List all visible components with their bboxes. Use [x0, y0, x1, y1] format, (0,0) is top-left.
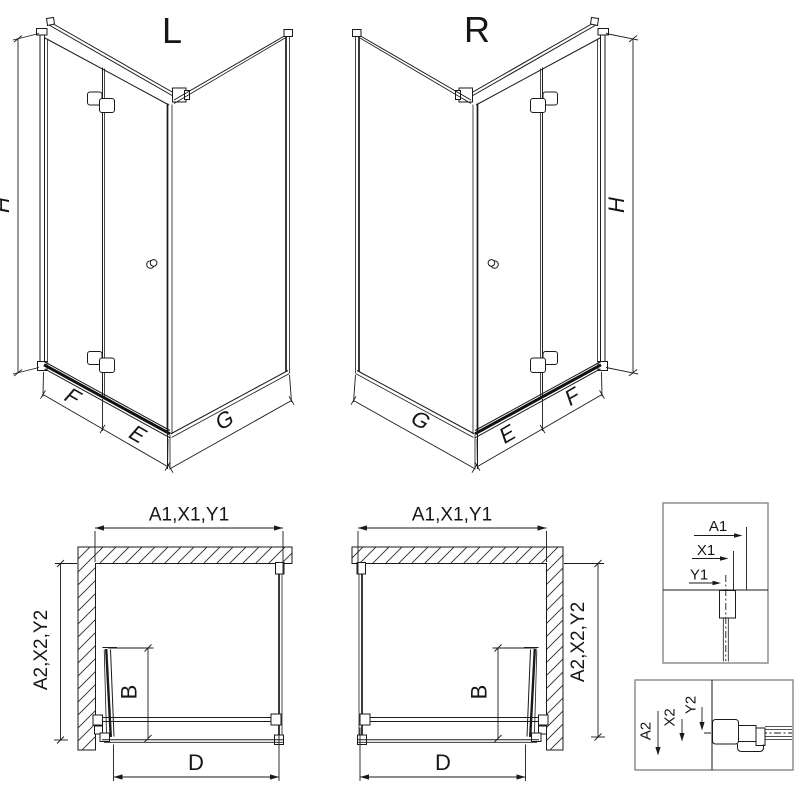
dim-label-a1x1y1-left: A1,X1,Y1	[149, 505, 229, 526]
dimension-height-left: H	[0, 34, 39, 377]
dim-label-b-left: B	[117, 685, 142, 700]
shower-enclosure-technical-drawing: L	[0, 0, 800, 800]
dim-label-d-left: D	[188, 750, 204, 775]
detail-label-a2: A2	[638, 722, 655, 740]
bifold-door	[476, 38, 600, 398]
stabilizer-bar	[370, 715, 548, 725]
dimension-front-right: E F	[475, 372, 605, 471]
bifold-door	[45, 38, 169, 398]
fixed-panel	[357, 563, 370, 745]
dim-label-d-right: D	[435, 750, 451, 775]
detail-bottom-depth: A2 X2 Y2	[635, 680, 793, 770]
detail-top-width: A1 X1 Y1	[663, 503, 768, 663]
dim-label-b-right: B	[467, 685, 492, 700]
detail-label-a1: A1	[709, 518, 727, 535]
dimension-door-b: B	[108, 645, 154, 743]
detail-label-y1: Y1	[690, 567, 708, 584]
dimension-front-left: F E	[41, 372, 171, 471]
dim-label-a2x2y2-left: A2,X2,Y2	[31, 610, 52, 690]
plan-view-left: A1,X1,Y1 A2,X2,Y2 B D	[31, 505, 292, 782]
tray-edge	[102, 740, 283, 743]
drawing-sheet: L	[0, 0, 800, 800]
dim-label-a1x1y1-right: A1,X1,Y1	[412, 505, 492, 526]
dimension-side-left: G	[168, 375, 294, 473]
corner-post	[168, 104, 173, 470]
dim-label-h-left: H	[0, 197, 14, 213]
dimension-depth-side: A2,X2,Y2	[564, 560, 605, 741]
dim-label-g-left: G	[211, 405, 238, 435]
detail-label-y2: Y2	[683, 696, 700, 714]
fold-hinge-top	[531, 92, 558, 113]
fixed-panel	[271, 563, 284, 745]
door-handle-knob	[147, 260, 157, 269]
iso-view-right: R	[351, 9, 638, 473]
dim-label-a2x2y2-right: A2,X2,Y2	[568, 602, 589, 682]
corner-post	[473, 104, 478, 470]
dimension-door-b: B	[467, 645, 538, 743]
fold-hinge-bottom	[531, 352, 558, 373]
folding-door-plan	[95, 648, 118, 742]
plan-view-right: A1,X1,Y1 A2,X2,Y2 B D	[352, 505, 605, 782]
wall-profile-left	[37, 29, 48, 371]
detail-label-x1: X1	[697, 542, 715, 559]
variant-left-title: L	[162, 10, 182, 51]
detail-label-x2: X2	[662, 708, 679, 726]
iso-view-left: L	[0, 10, 294, 473]
door-handle-knob	[488, 260, 498, 269]
fold-hinge-top	[88, 92, 115, 113]
dimension-height-right: H	[604, 34, 638, 377]
dimension-entry-d: D	[114, 728, 280, 782]
dim-label-h-right: H	[604, 197, 629, 213]
dimension-depth-side: A2,X2,Y2	[31, 560, 77, 744]
dimension-side-right: G	[351, 375, 477, 473]
folding-door-plan	[524, 648, 547, 742]
tray-edge	[358, 740, 539, 743]
fold-hinge-bottom	[88, 352, 115, 373]
variant-right-title: R	[464, 9, 490, 50]
dim-label-g-right: G	[407, 405, 434, 435]
stabilizer-bar	[93, 715, 271, 725]
